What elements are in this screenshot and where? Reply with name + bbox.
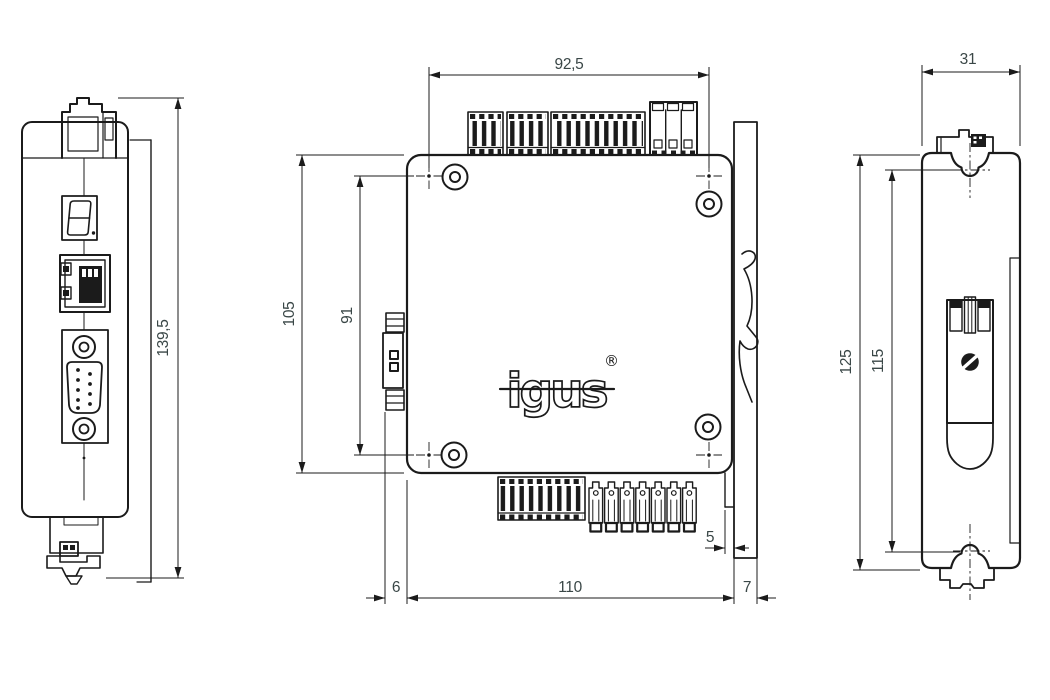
dim-label-body-height: 105 bbox=[281, 302, 298, 327]
main-view: igus ® 92,5 bbox=[281, 56, 776, 604]
mounting-point-bottom-right bbox=[696, 442, 722, 468]
terminal-block-top-3 bbox=[551, 112, 645, 155]
dim-label-side-height: 125 bbox=[838, 350, 855, 375]
dim-rail-step: 5 bbox=[705, 510, 749, 554]
dim-label-clip-span: 115 bbox=[870, 349, 887, 373]
dim-label-rail-step: 5 bbox=[706, 529, 714, 546]
din-rail-plate bbox=[725, 122, 758, 558]
terminal-block-bottom bbox=[498, 477, 585, 520]
seven-segment-display bbox=[62, 196, 97, 240]
dim-label-front-height: 139,5 bbox=[155, 319, 172, 356]
clip-wedge bbox=[947, 423, 993, 469]
encoder-connector bbox=[62, 98, 116, 158]
front-housing bbox=[22, 122, 128, 517]
front-view: 139,5 bbox=[22, 98, 184, 584]
din-clip-slider bbox=[947, 297, 993, 469]
dim-side-depth: 31 bbox=[922, 51, 1020, 146]
dim-label-mount-spacing-x: 92,5 bbox=[555, 56, 584, 73]
dim-label-mount-spacing-y: 91 bbox=[339, 307, 356, 324]
main-housing bbox=[407, 155, 732, 473]
dim-label-connector-protrusion: 6 bbox=[392, 579, 400, 596]
terminal-block-top-1 bbox=[468, 112, 503, 155]
front-centerline bbox=[83, 158, 86, 500]
dim-label-rail-overhang: 7 bbox=[743, 579, 751, 596]
registered-trademark: ® bbox=[604, 352, 619, 370]
technical-drawing-page: 139,5 bbox=[0, 0, 1050, 700]
dsub-pins bbox=[76, 368, 92, 410]
side-rail-plate-edge bbox=[1010, 258, 1019, 543]
side-view: 31 125 115 bbox=[838, 51, 1020, 600]
side-bottom-connector bbox=[940, 568, 994, 588]
dim-mount-spacing-y: 91 bbox=[339, 176, 414, 455]
dim-label-side-depth: 31 bbox=[960, 51, 977, 68]
screw-hole-bottom-right bbox=[696, 415, 721, 440]
igus-logo: igus ® bbox=[500, 352, 619, 419]
dimension-drawing: 139,5 bbox=[0, 0, 1050, 700]
front-rail-plate-edge bbox=[130, 140, 151, 582]
clip-screw bbox=[961, 353, 979, 371]
screw-hole-bottom-left bbox=[442, 443, 467, 468]
side-connector-left bbox=[383, 313, 404, 410]
din-clip-spring bbox=[739, 251, 758, 402]
screw-hole-top-right bbox=[697, 192, 722, 217]
mounting-point-bottom-left bbox=[416, 442, 442, 468]
terminal-block-top-2 bbox=[507, 112, 548, 155]
side-top-connector bbox=[937, 130, 993, 153]
dsub-connector bbox=[62, 330, 108, 443]
igus-logo-text: igus bbox=[506, 364, 606, 419]
front-din-clip bbox=[47, 517, 103, 584]
dim-front-height: 139,5 bbox=[106, 98, 184, 578]
ethernet-port bbox=[60, 255, 110, 312]
motor-connector-row bbox=[589, 482, 696, 532]
power-terminal-block bbox=[650, 102, 697, 155]
screw-hole-top-left bbox=[443, 165, 468, 190]
dim-label-body-width: 110 bbox=[558, 579, 582, 596]
